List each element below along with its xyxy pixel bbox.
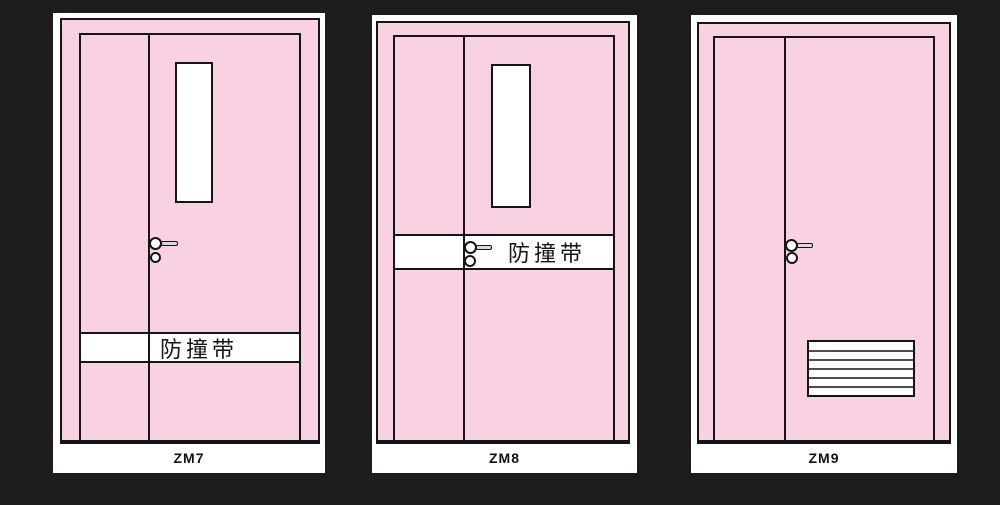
louver-slat-line <box>809 386 913 388</box>
door-code-label: ZM9 <box>691 450 957 466</box>
louver-slat-line <box>809 368 913 370</box>
vision-panel-window <box>491 64 531 208</box>
lever-handle-bar-icon <box>161 241 178 246</box>
lever-handle-bar-icon <box>476 245 492 250</box>
door-card-zm9: ZM9 <box>691 15 957 473</box>
lever-handle-bar-icon <box>797 243 813 248</box>
louver-slat-line <box>809 350 913 352</box>
vision-panel-window <box>175 62 213 203</box>
louver-slat-line <box>809 377 913 379</box>
bump-strip-label: 防撞带 <box>160 332 238 364</box>
door-leaves: 防撞带 <box>393 35 615 440</box>
background: { "colors": { "background": "#1e1c1d", "… <box>0 0 1000 505</box>
lock-cylinder-icon <box>786 252 798 264</box>
door-leaves <box>713 36 935 440</box>
leaf-divider-line <box>463 37 465 440</box>
door-code-label: ZM8 <box>372 450 637 466</box>
bump-strip: 防撞带 <box>395 234 613 270</box>
door-card-zm7: 防撞带 ZM7 <box>53 13 325 473</box>
door-frame: 防撞带 <box>60 18 320 444</box>
door-frame: 防撞带 <box>376 21 630 444</box>
bump-strip: 防撞带 <box>81 332 299 363</box>
louver-slat-line <box>809 359 913 361</box>
bump-strip-label: 防撞带 <box>508 236 586 268</box>
leaf-divider-line <box>784 38 786 440</box>
leaf-divider-line <box>148 35 150 440</box>
door-frame <box>697 22 951 444</box>
lock-cylinder-icon <box>150 252 161 263</box>
door-code-label: ZM7 <box>53 450 325 466</box>
diagram-board: 防撞带 ZM7 防撞带 ZM8 <box>0 0 1000 505</box>
louver-vent-icon <box>807 340 915 397</box>
door-leaves: 防撞带 <box>79 33 301 440</box>
door-card-zm8: 防撞带 ZM8 <box>372 15 637 473</box>
lock-cylinder-icon <box>464 255 476 267</box>
